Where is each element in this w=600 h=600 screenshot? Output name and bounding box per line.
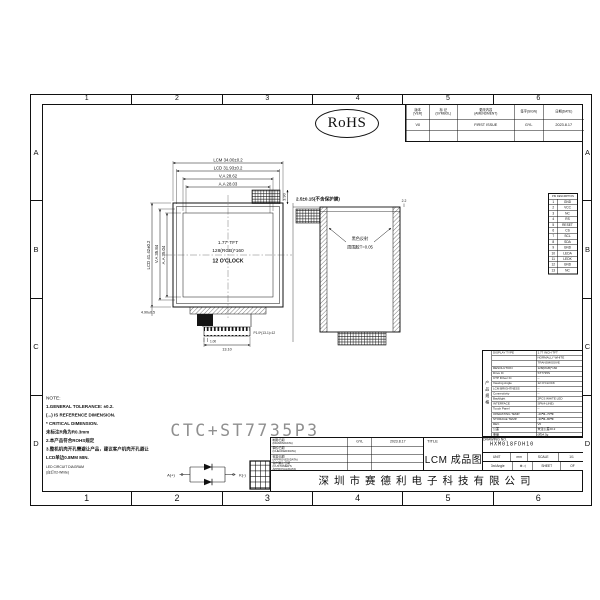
side-fpc-block	[296, 209, 320, 223]
title-box: TITLE LCM 成品图	[423, 437, 482, 470]
dim-label-lcd-width: LCD 31.93±0.2	[214, 165, 243, 170]
notes-lines: 1.GENERAL TOLERANCE: ±0.2. (...) IS REFE…	[46, 403, 211, 463]
spec-value: 未注公差±0.2	[536, 428, 582, 433]
spec-value: 1.77 INCH TFT	[536, 351, 582, 356]
spec-value: V0	[536, 423, 582, 428]
spec-label: 公差	[492, 428, 536, 433]
led-wires	[180, 467, 236, 482]
note-line: * CRITICAL DIMENSION.	[46, 420, 211, 429]
spec-label	[492, 356, 536, 361]
approval-date: 2023.8.17	[372, 438, 424, 446]
dim-label-aa-width: A.A 28.03	[219, 181, 238, 186]
side-view: 2.5±0.15(不含保护膜) 2.2 黑色反射 周围胶T=0.05	[293, 196, 406, 346]
spec-label: Backlight	[492, 397, 536, 402]
side-note-line1: 黑色反射	[352, 235, 369, 242]
dim-label-pin-width: 1.00	[210, 340, 216, 344]
spec-value: NORMALLY WHITE	[536, 356, 582, 361]
title-label: TITLE	[427, 439, 438, 444]
spec-value: --	[536, 377, 582, 382]
spec-label: DISPLAY TYPE	[492, 351, 536, 356]
fpc-connector	[204, 327, 250, 336]
spec-label: RESOLUTION	[492, 366, 536, 371]
approval-sign	[348, 455, 372, 463]
spec-value: 2PCS WHITE LED	[536, 397, 582, 402]
drawing-no-block: DRAWING NO. HXM018FDH10	[482, 437, 583, 452]
front-view: LCM 34.00±0.2 LCD 31.93±0.2 V.A 28.62 A.…	[141, 157, 292, 351]
screen-text-size: 1.77' TFT	[218, 240, 238, 246]
thickness-extension-line	[293, 203, 320, 342]
spec-label: STORAGE TEMP.	[492, 417, 536, 422]
spec-value: 12 O'CLOCK	[536, 382, 582, 387]
note-line: 3.整机机壳开孔需避让产品，建议客户机壳开孔避让	[46, 445, 211, 454]
approval-date	[372, 455, 424, 463]
spec-label: Drive IC	[492, 371, 536, 376]
spec-label: LCM BRIGHTNESS	[492, 387, 536, 392]
spec-label: OPERATING TEMP.	[492, 412, 536, 417]
drawing-sheet: 123456 123456 ABCD ABCD RoHS 版本 [VER]标 记…	[0, 0, 600, 600]
spec-table: 产品规格 DISPLAY TYPE 1.77 INCH TFT NORMALLY…	[482, 350, 583, 437]
spec-value: -30℃~80℃	[536, 417, 582, 422]
side-right-wall	[393, 207, 400, 332]
spec-value: 128(RGB)*160	[536, 366, 582, 371]
dim-label-aa-height: A.A 35.04	[161, 245, 166, 264]
spec-label: REV.	[492, 423, 536, 428]
dim-label-bottom-offset: 4.90±0.5	[141, 311, 155, 315]
drawing-canvas: LCM 34.00±0.2 LCD 31.93±0.2 V.A 28.62 A.…	[0, 0, 600, 600]
note-line: 2.本产品符合ROHS规定	[46, 437, 211, 446]
dim-label-tab: 3.90	[282, 193, 286, 200]
spec-value: TRANSMISSIVE	[536, 361, 582, 366]
side-note-leader-left	[329, 228, 346, 242]
drawing-no-value: HXM018FDH10	[490, 442, 584, 448]
led-diode-bottom	[204, 479, 212, 485]
approval-sign	[348, 446, 372, 454]
note-line: (...) IS REFERENCE DIMENSION.	[46, 411, 211, 420]
led-cathode-label: K(-)	[239, 473, 246, 478]
spec-value: ST7735S	[536, 371, 582, 376]
spec-value: -20℃~70℃	[536, 412, 582, 417]
dim-label-connector-width: 13.10	[222, 348, 232, 352]
spec-value: --	[536, 387, 582, 392]
dim-label-va-width: V.A 28.62	[219, 173, 238, 178]
dim-label-thickness: 2.5±0.15(不含保护膜)	[296, 196, 340, 203]
screen-text-viewing: 12 O'CLOCK	[213, 259, 244, 265]
dim-label-va-height: V.A 35.84	[154, 244, 159, 263]
pin-pitch-ticks	[204, 338, 208, 342]
spec-label	[492, 361, 536, 366]
dim-label-lcd-height: LCD 41.42±0.2	[146, 240, 151, 269]
side-bottom-connector	[338, 332, 386, 345]
note-line: 未标注R角为R0.3mm	[46, 428, 211, 437]
unit-scale-row: UNIT mm SCALE 1/1	[482, 452, 583, 461]
side-note-line2: 周围胶T=0.05	[347, 244, 373, 251]
spec-value: --	[536, 407, 582, 412]
approval-label: 制图/日期 (DRAWN/DATA)	[271, 438, 348, 446]
screen-text-resolution: 128(RGB)*160	[212, 248, 244, 254]
spec-label: Connectivity	[492, 392, 536, 397]
projection-sheet-row: 3rd Angle ⊕ ◁ SHEET OF	[482, 461, 583, 470]
side-note-leader-right	[374, 228, 391, 242]
spec-value: SPI(4-LINE)	[536, 402, 582, 407]
fpc-strip	[190, 307, 266, 314]
company-name: 深圳市赛德利电子科技有限公司	[270, 470, 583, 492]
spec-label: INTERFACE	[492, 402, 536, 407]
note-line: LCD单边0.8MM MIN.	[46, 454, 211, 463]
led-anode-label: A(+)	[167, 473, 175, 478]
note-line: 1.GENERAL TOLERANCE: ±0.2.	[46, 403, 211, 412]
led-diagram-subtitle: (白灯X2-White)	[46, 470, 69, 475]
approval-label: 审核/日期 (CHECKED/DATA)	[271, 446, 348, 454]
driver-ic-chip	[197, 314, 213, 326]
spec-rows: DISPLAY TYPE 1.77 INCH TFT NORMALLY WHIT…	[492, 351, 582, 436]
dim-label-top-right: 2.2	[402, 199, 407, 203]
approval-table: 制图/日期 (DRAWN/DATA) GYL 2023.8.17 审核/日期 (…	[270, 437, 423, 470]
spec-label: Viewing Angle	[492, 382, 536, 387]
spec-label: CTP Driver IC	[492, 377, 536, 382]
spec-side-label: 产品规格	[483, 351, 492, 436]
notes-block: NOTE: 1.GENERAL TOLERANCE: ±0.2. (...) I…	[46, 394, 211, 469]
spec-value: --	[536, 392, 582, 397]
dim-label-pitch: P1.0*(13-1)=12	[254, 331, 276, 335]
notes-title: NOTE:	[46, 394, 211, 403]
approval-sign: GYL	[348, 438, 372, 446]
fpc-pad-layout	[250, 461, 270, 489]
drawing-title: LCM 成品图	[424, 451, 483, 466]
approval-date	[372, 446, 424, 454]
dim-label-lcm-width: LCM 34.00±0.2	[213, 157, 243, 162]
side-left-wall	[320, 207, 327, 332]
film-tab	[252, 190, 280, 204]
side-body-outline	[320, 207, 400, 332]
spec-label: Touch Panel	[492, 407, 536, 412]
